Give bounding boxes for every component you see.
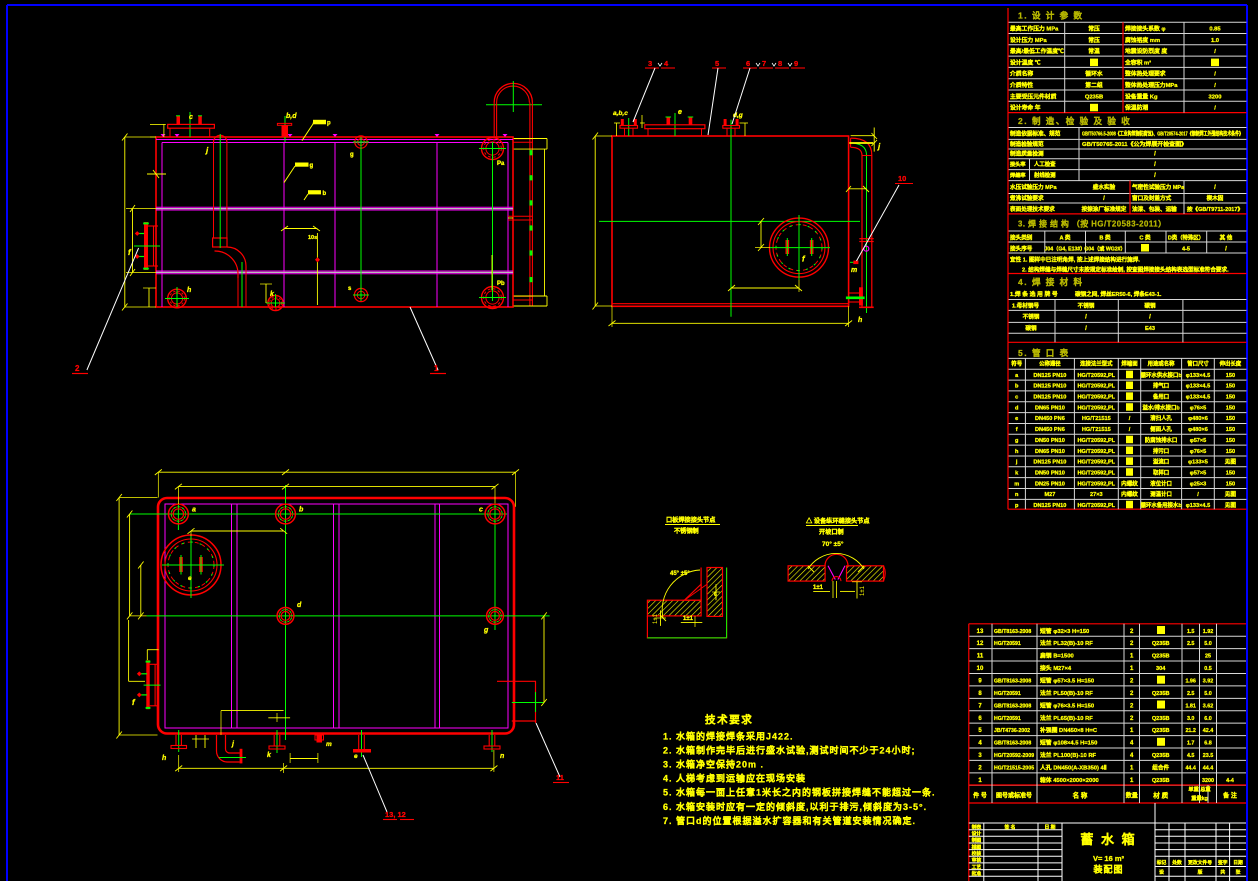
svg-text:DN125 PN10: DN125 PN10 <box>1033 503 1066 509</box>
svg-text:设计寿命 年: 设计寿命 年 <box>1010 104 1041 112</box>
svg-text:2. 制 造、检 验 及 验 收: 2. 制 造、检 验 及 验 收 <box>1018 116 1131 126</box>
svg-text:2. 水箱制作完毕后进行盛水试验,测试时间不少于24小时;: 2. 水箱制作完毕后进行盛水试验,测试时间不少于24小时; <box>663 745 916 756</box>
svg-text:5.0: 5.0 <box>1204 641 1212 647</box>
svg-text:法兰 PL100(B)-10 RF: 法兰 PL100(B)-10 RF <box>1040 751 1097 759</box>
svg-text:j: j <box>1015 460 1018 466</box>
svg-text:70° ±5°: 70° ±5° <box>822 540 844 548</box>
svg-text:接头率: 接头率 <box>1010 160 1026 168</box>
svg-text:水压试验压力 MPa: 水压试验压力 MPa <box>1009 183 1058 191</box>
svg-text:6.0: 6.0 <box>1204 716 1212 722</box>
svg-text:φ57×5: φ57×5 <box>1190 470 1207 476</box>
svg-text:b: b <box>323 191 327 197</box>
svg-text:3200: 3200 <box>1209 94 1222 100</box>
svg-text:Q235B: Q235B <box>1152 778 1170 784</box>
svg-text:短管 φ57×3.5 H=150: 短管 φ57×3.5 H=150 <box>1040 677 1094 685</box>
svg-text:溢水/排水接口b: 溢水/排水接口b <box>1143 403 1181 411</box>
svg-text:6: 6 <box>746 59 750 68</box>
svg-text:短管 φ76×3.5 H=150: 短管 φ76×3.5 H=150 <box>1040 701 1094 709</box>
svg-text:HG/T20592,PL: HG/T20592,PL <box>1077 438 1115 444</box>
svg-text:1.焊 条 选 用 牌 号: 1.焊 条 选 用 牌 号 <box>1010 290 1058 298</box>
svg-text:11: 11 <box>977 654 984 660</box>
svg-text:接头序号: 接头序号 <box>1010 244 1033 252</box>
svg-text:人工检查: 人工检查 <box>1034 160 1056 168</box>
svg-text:φ133×4.5: φ133×4.5 <box>1186 395 1210 401</box>
svg-text:a: a <box>192 507 196 514</box>
svg-text:c: c <box>479 507 483 514</box>
svg-text:DN450 PN6: DN450 PN6 <box>1035 427 1065 433</box>
svg-text:法兰 PL32(B)-10 RF: 法兰 PL32(B)-10 RF <box>1040 639 1093 647</box>
svg-text:设计温度 ℃: 设计温度 ℃ <box>1010 58 1041 66</box>
svg-text:常温: 常温 <box>1088 47 1100 55</box>
svg-text:21.2: 21.2 <box>1185 728 1196 734</box>
svg-text:12: 12 <box>977 641 984 647</box>
svg-text:HG/T20592,PL: HG/T20592,PL <box>1077 405 1115 411</box>
svg-text:4. 焊 接 材 料: 4. 焊 接 材 料 <box>1018 277 1084 287</box>
svg-text:e: e <box>1015 416 1018 422</box>
svg-text:φ133×4.5: φ133×4.5 <box>1186 373 1210 379</box>
svg-text:2: 2 <box>75 364 80 373</box>
svg-text:HG/T20592,PL: HG/T20592,PL <box>1077 373 1115 379</box>
svg-text:见图: 见图 <box>1225 501 1237 509</box>
svg-text:介质特性: 介质特性 <box>1009 81 1033 89</box>
svg-text:h: h <box>858 317 862 324</box>
svg-text:150: 150 <box>1226 384 1235 390</box>
svg-text:签字: 签字 <box>1217 859 1228 866</box>
svg-text:6.8: 6.8 <box>1204 741 1212 747</box>
svg-text:f: f <box>1016 427 1018 433</box>
svg-text:d: d <box>297 602 302 609</box>
svg-text:e: e <box>188 575 192 582</box>
svg-text:测温计口: 测温计口 <box>1150 490 1172 498</box>
svg-text:射线检测: 射线检测 <box>1033 171 1056 179</box>
svg-text:焊端面: 焊端面 <box>1121 360 1138 368</box>
svg-text:2.5: 2.5 <box>1187 691 1195 697</box>
svg-text:DN25 PN10: DN25 PN10 <box>1035 481 1065 487</box>
svg-text:HG/T20592,PL: HG/T20592,PL <box>1077 449 1115 455</box>
svg-text:1±1: 1±1 <box>813 585 824 591</box>
svg-text:不锈钢: 不锈钢 <box>1078 302 1095 310</box>
svg-text:h: h <box>187 287 191 294</box>
svg-text:件 号: 件 号 <box>973 792 987 800</box>
svg-text:φ480×6: φ480×6 <box>1188 427 1208 433</box>
svg-text:Pa: Pa <box>497 161 505 167</box>
svg-text:版: 版 <box>1198 869 1203 876</box>
svg-text:管口尺寸: 管口尺寸 <box>1187 360 1209 368</box>
svg-text:1.0: 1.0 <box>1211 38 1219 44</box>
svg-text:150: 150 <box>1226 395 1235 401</box>
svg-text:1.5: 1.5 <box>1187 629 1195 635</box>
svg-text:Q235B: Q235B <box>1152 753 1170 759</box>
svg-text:6: 6 <box>714 592 717 598</box>
svg-text:组合件: 组合件 <box>1152 763 1169 771</box>
svg-text:制造检验规范: 制造检验规范 <box>1010 140 1044 148</box>
svg-text:△ 设备纵环缝接头节点: △ 设备纵环缝接头节点 <box>805 517 870 525</box>
svg-text:1±1: 1±1 <box>860 585 866 596</box>
svg-text:HG/T20592,PL: HG/T20592,PL <box>1077 481 1115 487</box>
svg-text:3. 焊 接 结 构 （按 HG/T20583-2011）: 3. 焊 接 结 构 （按 HG/T20583-2011） <box>1018 219 1166 229</box>
svg-text:材 质: 材 质 <box>1152 791 1168 800</box>
svg-text:φ25×3: φ25×3 <box>1190 481 1207 487</box>
svg-text:Q235B: Q235B <box>1152 654 1170 660</box>
svg-text:按捺涂厂标准规定: 按捺涂厂标准规定 <box>1082 205 1127 213</box>
svg-text:日 期: 日 期 <box>1045 824 1056 831</box>
svg-text:Q235B: Q235B <box>1152 641 1170 647</box>
svg-text:6. 水箱安装时应有一定的倾斜度,以利于排污,倾斜度为3-5: 6. 水箱安装时应有一定的倾斜度,以利于排污,倾斜度为3-5°. <box>663 801 927 812</box>
svg-text:4. 人梯考虑到运输应在现场安装: 4. 人梯考虑到运输应在现场安装 <box>663 773 806 784</box>
svg-text:HG/T20592,PL: HG/T20592,PL <box>1077 384 1115 390</box>
svg-text:11: 11 <box>556 773 564 782</box>
svg-text:GB/T8163-2008: GB/T8163-2008 <box>994 679 1031 685</box>
svg-text:V= 16 m³: V= 16 m³ <box>1093 854 1125 863</box>
svg-text:150: 150 <box>1226 481 1235 487</box>
svg-text:n: n <box>1015 492 1019 498</box>
svg-text:1. 设 计 参 数: 1. 设 计 参 数 <box>1018 11 1084 21</box>
svg-text:地震设防烈度 度: 地震设防烈度 度 <box>1125 47 1167 55</box>
svg-text:10s: 10s <box>308 235 317 241</box>
svg-text:见图: 见图 <box>1225 490 1237 498</box>
svg-text:备 注: 备 注 <box>1222 792 1237 800</box>
svg-text:3.92: 3.92 <box>1203 679 1214 685</box>
svg-text:扁钢 B=1500: 扁钢 B=1500 <box>1040 652 1074 660</box>
svg-text:HG/T21515: HG/T21515 <box>1082 427 1111 433</box>
svg-text:13, 12: 13, 12 <box>385 810 406 819</box>
svg-text:3. 水箱净空保持20m .: 3. 水箱净空保持20m . <box>663 759 764 770</box>
svg-text:设: 设 <box>1159 869 1164 876</box>
svg-text:连接法兰型式: 连接法兰型式 <box>1080 360 1113 368</box>
svg-text:150: 150 <box>1226 470 1235 476</box>
svg-text:取样口: 取样口 <box>1153 468 1169 476</box>
svg-text:3: 3 <box>648 59 652 68</box>
svg-text:审核: 审核 <box>972 857 982 864</box>
svg-text:1.92: 1.92 <box>1203 629 1214 635</box>
svg-text:7: 7 <box>762 59 766 68</box>
svg-text:碳钢: 碳钢 <box>1144 302 1156 310</box>
svg-text:校核: 校核 <box>972 850 982 857</box>
svg-text:HG/T20591: HG/T20591 <box>994 691 1021 697</box>
svg-text:签 名: 签 名 <box>1004 824 1016 831</box>
svg-text:其 他: 其 他 <box>1220 233 1233 241</box>
svg-text:8: 8 <box>778 59 782 68</box>
svg-text:10: 10 <box>977 666 984 672</box>
svg-text:3200: 3200 <box>1202 778 1214 784</box>
svg-text:伸出长度: 伸出长度 <box>1219 360 1242 368</box>
svg-text:42.4: 42.4 <box>1203 728 1214 734</box>
svg-text:Q235B: Q235B <box>1152 691 1170 697</box>
svg-text:5. 管 口 表: 5. 管 口 表 <box>1018 348 1070 358</box>
svg-text:蓄 水 箱: 蓄 水 箱 <box>1080 832 1136 847</box>
svg-text:4-4: 4-4 <box>1226 778 1234 784</box>
svg-text:B 类: B 类 <box>1099 233 1111 241</box>
svg-text:0.85: 0.85 <box>1209 27 1221 33</box>
svg-text:公称通径: 公称通径 <box>1039 360 1061 368</box>
svg-text:处数: 处数 <box>1171 859 1182 866</box>
svg-text:d: d <box>1015 405 1019 411</box>
svg-text:4-5: 4-5 <box>1182 246 1190 252</box>
svg-text:内螺纹: 内螺纹 <box>1121 479 1138 487</box>
svg-text:装配图: 装配图 <box>1092 864 1123 875</box>
svg-text:见图: 见图 <box>1225 458 1237 466</box>
svg-text:1.母材钢号: 1.母材钢号 <box>1012 302 1039 310</box>
svg-text:不锈钢: 不锈钢 <box>1023 313 1040 321</box>
svg-text:设计压力 MPa: 设计压力 MPa <box>1010 36 1047 44</box>
svg-text:HG/T20591: HG/T20591 <box>994 716 1021 722</box>
svg-text:溢流口: 溢流口 <box>1153 458 1169 466</box>
svg-text:A 类: A 类 <box>1060 233 1071 241</box>
svg-text:整体热处理要求: 整体热处理要求 <box>1124 70 1166 78</box>
svg-text:油漆、包装、运输: 油漆、包装、运输 <box>1132 205 1177 213</box>
svg-text:JB/T4736-2002: JB/T4736-2002 <box>994 728 1030 734</box>
svg-text:150: 150 <box>1226 405 1235 411</box>
svg-text:腐蚀裕度 mm: 腐蚀裕度 mm <box>1125 36 1160 44</box>
svg-text:φ133×5: φ133×5 <box>1188 460 1208 466</box>
svg-text:批准: 批准 <box>972 870 982 877</box>
svg-text:日期: 日期 <box>1233 859 1243 866</box>
svg-text:表面处理技术要求: 表面处理技术要求 <box>1009 205 1055 213</box>
svg-text:9: 9 <box>794 59 798 68</box>
svg-text:盛水实验: 盛水实验 <box>1093 183 1116 191</box>
svg-text:p: p <box>1015 503 1019 509</box>
svg-text:2.5: 2.5 <box>1187 641 1195 647</box>
svg-text:10: 10 <box>898 174 906 183</box>
svg-text:侧面人孔: 侧面人孔 <box>1150 425 1172 433</box>
svg-text:最高工作压力 MPa: 最高工作压力 MPa <box>1010 25 1059 33</box>
svg-text:b,d: b,d <box>286 113 297 120</box>
svg-text:DN125 PN10: DN125 PN10 <box>1033 460 1066 466</box>
svg-text:制图: 制图 <box>972 837 982 844</box>
svg-text:g: g <box>350 152 354 158</box>
svg-text:φ57×5: φ57×5 <box>1190 438 1207 444</box>
svg-text:φ480×6: φ480×6 <box>1188 416 1208 422</box>
svg-text:D类（特殊区）: D类（特殊区） <box>1168 233 1204 241</box>
svg-text:HG/T20592,PL: HG/T20592,PL <box>1077 460 1115 466</box>
svg-text:名 称: 名 称 <box>1073 791 1088 800</box>
svg-text:g: g <box>483 627 489 634</box>
svg-text:防腐蚀排水口: 防腐蚀排水口 <box>1145 436 1177 444</box>
svg-text:h: h <box>1015 449 1019 455</box>
svg-text:气密性试验压力 MPa: 气密性试验压力 MPa <box>1131 183 1185 191</box>
svg-text:图号或标准号: 图号或标准号 <box>996 792 1032 800</box>
svg-text:3.0: 3.0 <box>1187 716 1195 722</box>
svg-text:p: p <box>327 121 331 127</box>
svg-text:Q235B: Q235B <box>1152 728 1170 734</box>
svg-text:c: c <box>1015 395 1018 401</box>
svg-text:备用口: 备用口 <box>1152 393 1169 401</box>
svg-text:窗口及封盖方式: 窗口及封盖方式 <box>1132 194 1172 202</box>
svg-text:介质名称: 介质名称 <box>1009 70 1033 78</box>
svg-text:C 类: C 类 <box>1139 233 1151 241</box>
svg-text:DN50 PN10: DN50 PN10 <box>1035 438 1065 444</box>
svg-text:第二组: 第二组 <box>1085 81 1103 89</box>
svg-text:g: g <box>1015 438 1019 444</box>
svg-text:煮沸试验要求: 煮沸试验要求 <box>1009 194 1044 202</box>
svg-text:排气口: 排气口 <box>1153 382 1169 390</box>
svg-text:e: e <box>354 753 358 760</box>
svg-text:DN50 PN10: DN50 PN10 <box>1035 470 1065 476</box>
svg-text:b: b <box>299 507 304 514</box>
svg-text:DN65 PN10: DN65 PN10 <box>1035 449 1065 455</box>
svg-text:φ133×4.5: φ133×4.5 <box>1186 503 1210 509</box>
svg-text:h: h <box>162 755 166 762</box>
svg-text:常压: 常压 <box>1088 36 1100 44</box>
svg-text:楔木固: 楔木固 <box>1207 194 1224 202</box>
svg-text:n: n <box>500 753 504 760</box>
svg-text:碳钢: 碳钢 <box>1025 324 1037 332</box>
svg-text:a,b,c: a,b,c <box>613 110 628 117</box>
svg-text:内螺纹: 内螺纹 <box>1121 490 1138 498</box>
svg-text:补强圈 DN450×8 H=C: 补强圈 DN450×8 H=C <box>1039 726 1098 734</box>
svg-text:按《GB/T9711-2017》: 按《GB/T9711-2017》 <box>1187 205 1243 213</box>
svg-text:E43: E43 <box>1145 326 1155 332</box>
svg-text:焊接接头系数 φ: 焊接接头系数 φ <box>1125 25 1166 33</box>
svg-text:Q235B: Q235B <box>1152 716 1170 722</box>
svg-text:全容积 m³: 全容积 m³ <box>1124 58 1151 66</box>
svg-text:0.5: 0.5 <box>1204 666 1212 672</box>
svg-text:HG/T20592,PL: HG/T20592,PL <box>1077 470 1115 476</box>
svg-text:接头类别: 接头类别 <box>1010 233 1033 241</box>
svg-text:HG/T21515: HG/T21515 <box>1082 416 1111 422</box>
svg-text:1: 1 <box>434 364 439 373</box>
svg-text:更改文件号: 更改文件号 <box>1188 859 1212 866</box>
svg-text:整体热处理压力MPa: 整体热处理压力MPa <box>1124 81 1178 89</box>
svg-text:1±1: 1±1 <box>683 616 694 622</box>
svg-text:φ76×5: φ76×5 <box>1190 449 1207 455</box>
svg-text:5: 5 <box>715 59 719 68</box>
svg-text:法兰 PL65(B)-10 RF: 法兰 PL65(B)-10 RF <box>1040 714 1093 722</box>
svg-text:1.81: 1.81 <box>1185 703 1196 709</box>
svg-text:c: c <box>189 114 193 121</box>
svg-text:27×3: 27×3 <box>1090 492 1103 498</box>
svg-text:m: m <box>326 741 332 748</box>
svg-text:制造质量检测: 制造质量检测 <box>1010 150 1044 158</box>
svg-text:液位计口: 液位计口 <box>1150 479 1172 487</box>
svg-text:DN125 PN10: DN125 PN10 <box>1033 373 1066 379</box>
svg-text:工艺: 工艺 <box>972 863 982 870</box>
svg-text:5. 水箱每一面上任意1米长之内的钢板拼接焊缝不能超过一条.: 5. 水箱每一面上任意1米长之内的钢板拼接焊缝不能超过一条. <box>663 787 936 798</box>
svg-text:2. 结构焊缝与焊缝尺寸未按规定标准绘制, 按查图焊接接头结: 2. 结构焊缝与焊缝尺寸未按规定标准绘制, 按查图焊接接头结构表选型标准符合要求… <box>1022 266 1229 274</box>
svg-text:25: 25 <box>1205 654 1211 660</box>
svg-text:e: e <box>678 109 682 116</box>
svg-text:数量: 数量 <box>1126 792 1138 800</box>
svg-text:技术要求: 技术要求 <box>705 713 753 726</box>
svg-text:法兰 PL50(B)-10 RF: 法兰 PL50(B)-10 RF <box>1040 689 1093 697</box>
svg-text:150: 150 <box>1226 373 1235 379</box>
svg-text:φ76×5: φ76×5 <box>1190 405 1207 411</box>
svg-text:最高/最低工作温度℃: 最高/最低工作温度℃ <box>1010 47 1064 55</box>
svg-text:1.96: 1.96 <box>1185 679 1196 685</box>
svg-text:主要受压元件材质: 主要受压元件材质 <box>1010 92 1057 100</box>
svg-text:J04（G4, E13#）: J04（G4, E13#） <box>1045 244 1086 252</box>
svg-text:150: 150 <box>1226 449 1235 455</box>
svg-text:DN125 PN10: DN125 PN10 <box>1033 384 1066 390</box>
svg-text:GB/T8163-2008: GB/T8163-2008 <box>994 629 1031 635</box>
svg-text:150: 150 <box>1226 427 1235 433</box>
svg-text:制造依据标准、规范: 制造依据标准、规范 <box>1010 129 1061 137</box>
svg-text:304: 304 <box>1156 666 1166 672</box>
svg-text:45° ±5°: 45° ±5° <box>670 571 690 577</box>
svg-text:44.4: 44.4 <box>1203 765 1214 771</box>
svg-text:描图: 描图 <box>972 843 982 850</box>
svg-text:3.62: 3.62 <box>1203 703 1214 709</box>
svg-text:23.5: 23.5 <box>1203 753 1214 759</box>
svg-text:循环水供水接口b: 循环水供水接口b <box>1141 371 1183 379</box>
svg-text:150: 150 <box>1226 416 1235 422</box>
svg-text:G04（或 WG2#）: G04（或 WG2#） <box>1084 244 1126 252</box>
svg-text:g: g <box>310 163 314 169</box>
svg-text:张: 张 <box>1236 869 1241 876</box>
svg-text:HG/T20592,PL: HG/T20592,PL <box>1077 503 1115 509</box>
svg-text:DN125 PN10: DN125 PN10 <box>1033 395 1066 401</box>
svg-text:用途或名称: 用途或名称 <box>1148 360 1176 368</box>
svg-text:HG/T20592-2009: HG/T20592-2009 <box>994 753 1034 759</box>
svg-text:HG/T20591: HG/T20591 <box>994 641 1021 647</box>
svg-text:焊缝率: 焊缝率 <box>1010 171 1026 179</box>
svg-text:5.0: 5.0 <box>1204 691 1212 697</box>
svg-text:循环水: 循环水 <box>1085 70 1103 78</box>
svg-text:制表: 制表 <box>972 824 982 831</box>
svg-text:HG/T20592,PL: HG/T20592,PL <box>1077 395 1115 401</box>
svg-text:φ133×4.5: φ133×4.5 <box>1186 384 1210 390</box>
svg-text:Pb: Pb <box>497 281 505 287</box>
svg-text:碳钢之间, 焊丝ER50-6, 焊条E43-1.: 碳钢之间, 焊丝ER50-6, 焊条E43-1. <box>1075 290 1162 298</box>
svg-text:b: b <box>1015 384 1019 390</box>
svg-text:1. 水箱的焊接焊条采用J422.: 1. 水箱的焊接焊条采用J422. <box>663 731 794 742</box>
svg-text:共: 共 <box>1220 869 1225 876</box>
svg-text:GB/T8163-2008: GB/T8163-2008 <box>994 741 1031 747</box>
svg-text:保温防潮: 保温防潮 <box>1124 104 1148 112</box>
svg-text:GB/T50766.5-2008《工业构筑物防腐蚀》、GB/: GB/T50766.5-2008《工业构筑物防腐蚀》、GB/T20574-201… <box>1082 129 1243 137</box>
svg-text:7. 管口d的位置根据溢水扩容器和有关管道安装情况确定.: 7. 管口d的位置根据溢水扩容器和有关管道安装情况确定. <box>663 815 916 826</box>
svg-text:Q235B: Q235B <box>1085 94 1103 100</box>
svg-text:人孔 DN450(A-XB350) 4Ⅱ: 人孔 DN450(A-XB350) 4Ⅱ <box>1039 763 1107 771</box>
svg-text:1±1: 1±1 <box>653 613 659 624</box>
svg-text:排污口: 排污口 <box>1153 447 1169 455</box>
svg-text:GB/T8163-2008: GB/T8163-2008 <box>994 703 1031 709</box>
svg-text:重量kg: 重量kg <box>1191 794 1207 802</box>
svg-text:短管 φ32×3 H=150: 短管 φ32×3 H=150 <box>1040 627 1089 635</box>
svg-text:M27: M27 <box>1044 492 1055 498</box>
svg-text:4.5: 4.5 <box>1187 753 1195 759</box>
svg-text:清扫人孔: 清扫人孔 <box>1150 414 1172 422</box>
svg-text:m: m <box>851 267 857 274</box>
svg-text:箱体 4500×2000×2000: 箱体 4500×2000×2000 <box>1040 776 1099 784</box>
svg-text:1.7: 1.7 <box>1187 741 1195 747</box>
svg-text:DN450 PN6: DN450 PN6 <box>1035 416 1065 422</box>
svg-text:不锈钢制: 不锈钢制 <box>674 527 699 535</box>
svg-text:m: m <box>1014 481 1019 487</box>
svg-text:口板焊接接头节点: 口板焊接接头节点 <box>666 516 716 524</box>
svg-text:宜性 1. 图样中已注明角焊, 按上述焊接结构进行施焊.: 宜性 1. 图样中已注明角焊, 按上述焊接结构进行施焊. <box>1010 256 1140 264</box>
svg-text:设计: 设计 <box>972 830 982 837</box>
svg-text:单重 总重: 单重 总重 <box>1188 785 1211 793</box>
svg-text:13: 13 <box>977 629 984 635</box>
svg-text:开坡口制: 开坡口制 <box>819 528 844 536</box>
svg-text:150: 150 <box>1226 438 1235 444</box>
svg-text:标记: 标记 <box>1156 859 1167 866</box>
svg-text:设备重量 Kg: 设备重量 Kg <box>1125 92 1158 100</box>
svg-text:接头 M27×4: 接头 M27×4 <box>1040 664 1072 672</box>
svg-text:DN65 PN10: DN65 PN10 <box>1035 405 1065 411</box>
svg-text:符号: 符号 <box>1011 360 1022 368</box>
svg-text:HG/T21515-2005: HG/T21515-2005 <box>994 765 1034 771</box>
svg-text:GB/T50765-2011《公为焊展开检查图》: GB/T50765-2011《公为焊展开检查图》 <box>1082 140 1187 148</box>
svg-text:44.4: 44.4 <box>1185 765 1196 771</box>
svg-text:循环水备用接水b: 循环水备用接水b <box>1141 501 1183 509</box>
svg-text:短管 φ108×4.5 H=150: 短管 φ108×4.5 H=150 <box>1040 739 1097 747</box>
svg-text:常压: 常压 <box>1088 25 1100 33</box>
